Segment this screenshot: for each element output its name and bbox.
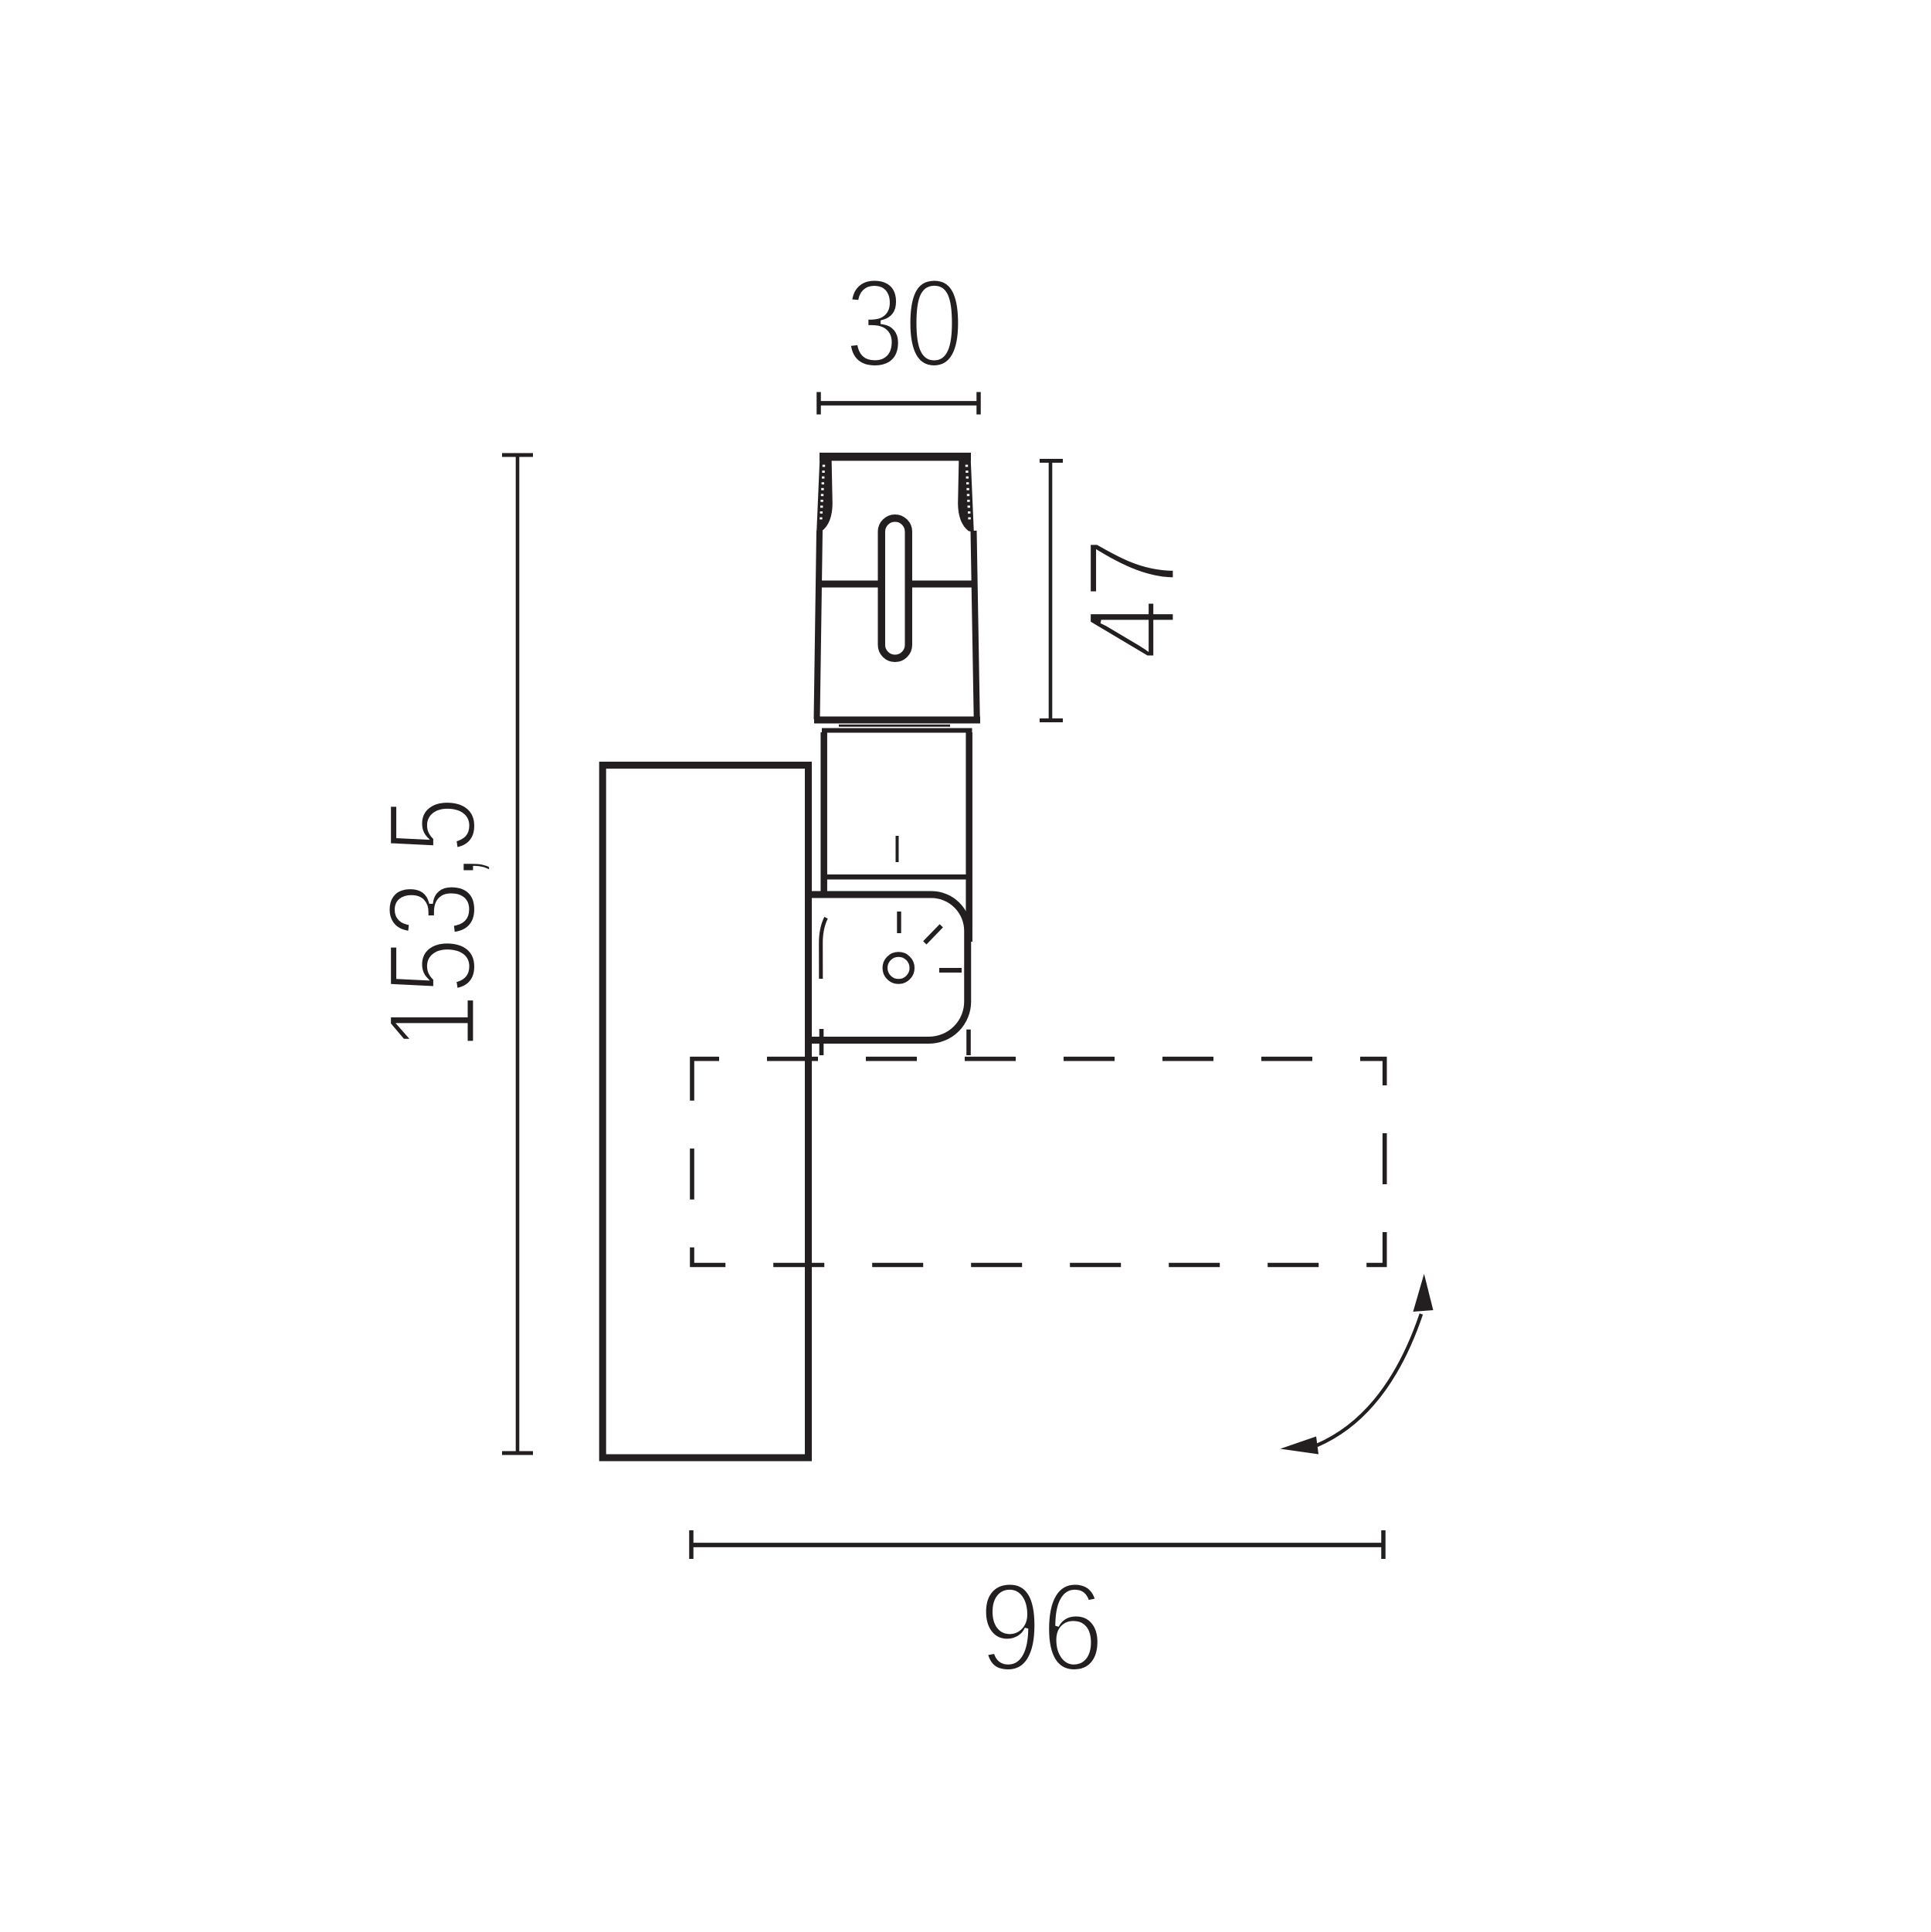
svg-text:153,5: 153,5: [362, 797, 502, 1051]
svg-text:30: 30: [845, 253, 964, 393]
svg-text:96: 96: [979, 1557, 1105, 1697]
svg-text:47: 47: [1062, 538, 1202, 660]
